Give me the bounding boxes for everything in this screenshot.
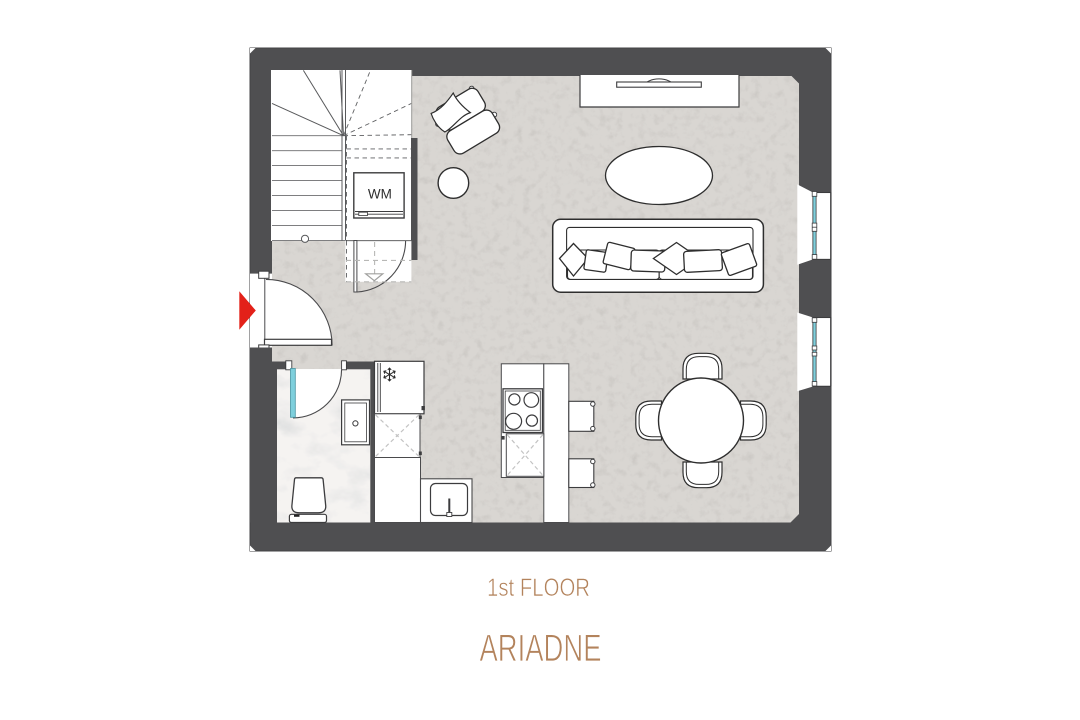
svg-text:1st FLOOR: 1st FLOOR — [487, 574, 590, 602]
svg-text:ARIADNE: ARIADNE — [480, 628, 602, 670]
svg-text:WM: WM — [368, 187, 392, 202]
